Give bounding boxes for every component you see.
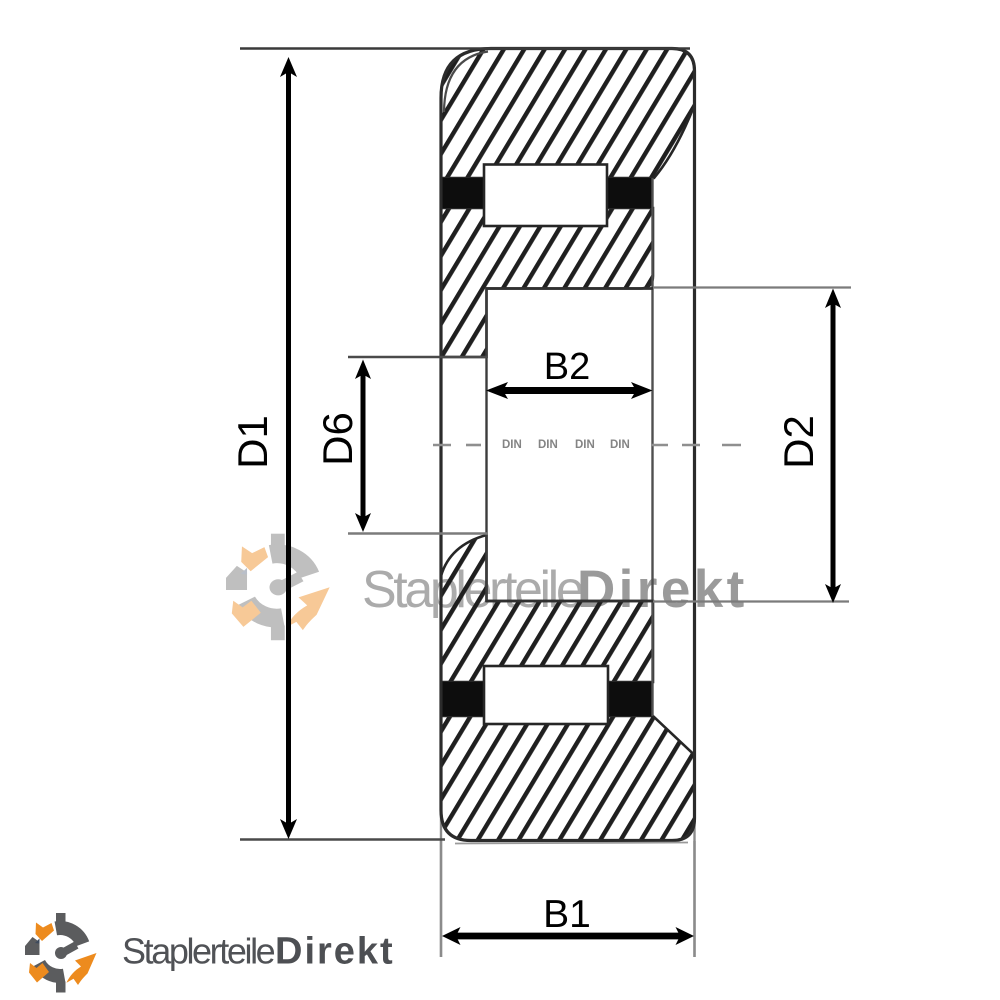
svg-text:D2: D2	[775, 415, 822, 469]
svg-text:DIN: DIN	[538, 439, 558, 451]
svg-text:D1: D1	[229, 415, 276, 469]
svg-text:B1: B1	[543, 893, 591, 936]
svg-text:Staplerteile: Staplerteile	[122, 931, 275, 972]
svg-text:DIN: DIN	[610, 439, 630, 451]
svg-text:DIN: DIN	[575, 439, 595, 451]
svg-text:D6: D6	[314, 412, 361, 466]
svg-text:DIN: DIN	[502, 439, 522, 451]
svg-text:B2: B2	[544, 346, 590, 388]
svg-text:Direkt: Direkt	[275, 931, 395, 973]
